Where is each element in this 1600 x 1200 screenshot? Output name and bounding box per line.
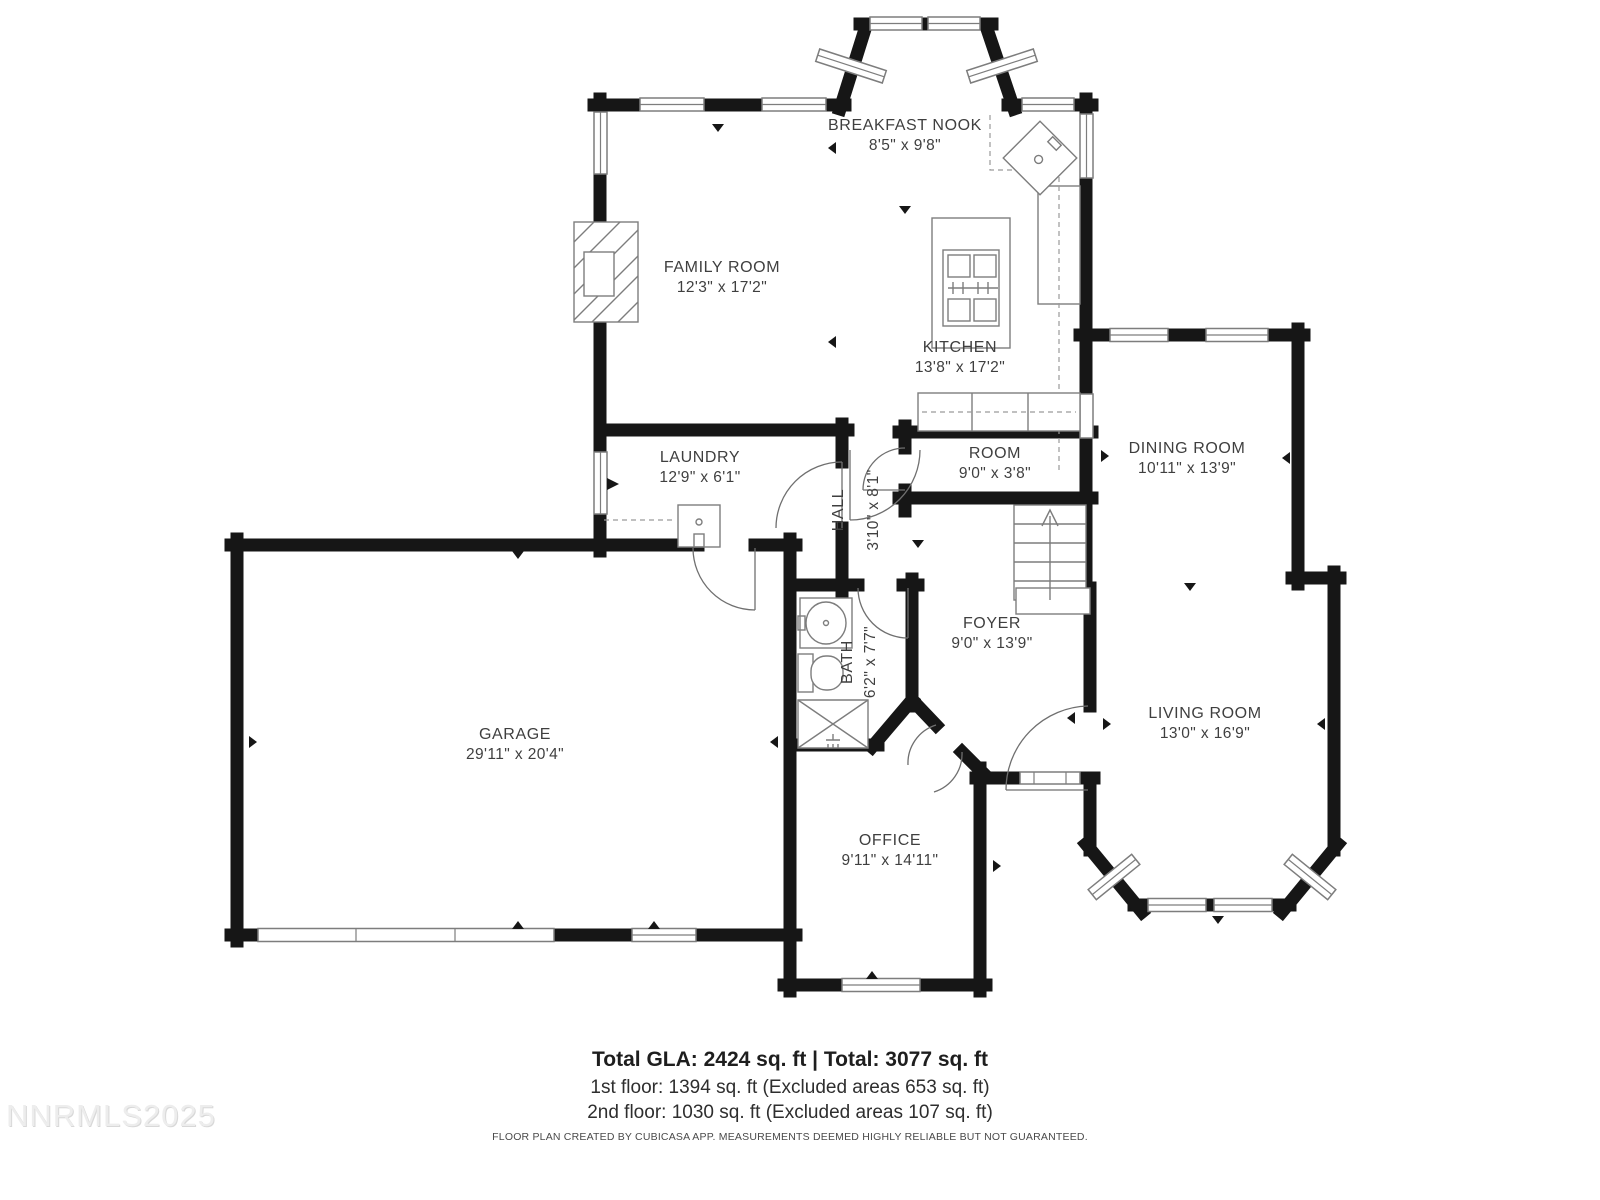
room-label-kitchen: KITCHEN 13'8" x 17'2" xyxy=(915,339,1005,376)
door-garage xyxy=(693,548,755,610)
window xyxy=(1206,329,1268,342)
svg-text:8'5" x 9'8": 8'5" x 9'8" xyxy=(869,137,941,154)
window xyxy=(640,98,704,111)
stairs xyxy=(1014,505,1090,614)
watermark-text: NNRMLS2025 xyxy=(6,1098,216,1134)
corner-sink-icon xyxy=(1003,121,1077,195)
bath-fixtures xyxy=(798,598,868,748)
svg-text:9'0" x 3'8": 9'0" x 3'8" xyxy=(959,465,1031,482)
garage-door xyxy=(258,929,554,942)
svg-text:13'8" x 17'2": 13'8" x 17'2" xyxy=(915,359,1005,376)
shower-icon xyxy=(798,700,868,748)
window xyxy=(762,98,826,111)
svg-text:OFFICE: OFFICE xyxy=(859,832,921,849)
room-label-family-room: FAMILY ROOM 12'3" x 17'2" xyxy=(664,259,780,296)
windows xyxy=(258,17,1336,992)
svg-text:12'3" x 17'2": 12'3" x 17'2" xyxy=(677,279,767,296)
window xyxy=(1110,329,1168,342)
svg-text:6'2" x 7'7": 6'2" x 7'7" xyxy=(862,626,879,698)
svg-text:10'11" x 13'9": 10'11" x 13'9" xyxy=(1138,460,1236,477)
room-label-office: OFFICE 9'11" x 14'11" xyxy=(842,832,939,869)
window xyxy=(594,112,607,174)
svg-text:LIVING ROOM: LIVING ROOM xyxy=(1148,705,1261,722)
door-office-a xyxy=(908,725,936,765)
disclaimer-text: FLOOR PLAN CREATED BY CUBICASA APP. MEAS… xyxy=(0,1131,1580,1143)
svg-text:FOYER: FOYER xyxy=(963,615,1021,632)
window xyxy=(594,452,607,514)
total-gla-line: Total GLA: 2424 sq. ft | Total: 3077 sq.… xyxy=(0,1048,1580,1072)
stove-icon xyxy=(943,250,999,326)
fireplace xyxy=(574,222,638,322)
window xyxy=(842,979,920,992)
window xyxy=(928,17,980,30)
window xyxy=(1214,899,1272,912)
door-office-b xyxy=(934,752,962,792)
second-floor-line: 2nd floor: 1030 sq. ft (Excluded areas 1… xyxy=(0,1102,1580,1124)
room-label-dining-room: DINING ROOM 10'11" x 13'9" xyxy=(1129,440,1246,477)
room-label-living-room: LIVING ROOM 13'0" x 16'9" xyxy=(1148,705,1261,742)
window xyxy=(1080,114,1093,178)
svg-text:HALL: HALL xyxy=(830,489,847,531)
svg-text:DINING ROOM: DINING ROOM xyxy=(1129,440,1246,457)
room-label-garage: GARAGE 29'11" x 20'4" xyxy=(466,726,564,763)
window xyxy=(870,17,922,30)
svg-text:BATH: BATH xyxy=(839,640,856,684)
room-label-breakfast-nook: BREAKFAST NOOK 8'5" x 9'8" xyxy=(828,117,982,154)
svg-text:GARAGE: GARAGE xyxy=(479,726,551,743)
area-summary: Total GLA: 2424 sq. ft | Total: 3077 sq.… xyxy=(0,1048,1580,1127)
svg-text:LAUNDRY: LAUNDRY xyxy=(660,449,740,466)
walls xyxy=(231,24,1340,991)
svg-text:BREAKFAST NOOK: BREAKFAST NOOK xyxy=(828,117,982,134)
svg-text:FAMILY ROOM: FAMILY ROOM xyxy=(664,259,780,276)
svg-text:9'0" x 13'9": 9'0" x 13'9" xyxy=(951,635,1032,652)
svg-text:29'11" x 20'4": 29'11" x 20'4" xyxy=(466,746,564,763)
toilet-icon xyxy=(798,654,843,692)
svg-text:13'0" x 16'9": 13'0" x 16'9" xyxy=(1160,725,1250,742)
svg-text:3'10" x 8'1": 3'10" x 8'1" xyxy=(865,469,882,550)
floor-plan-page: BREAKFAST NOOK 8'5" x 9'8" FAMILY ROOM 1… xyxy=(0,0,1600,1200)
room-label-room: ROOM 9'0" x 3'8" xyxy=(959,445,1031,482)
first-floor-line: 1st floor: 1394 sq. ft (Excluded areas 6… xyxy=(0,1077,1580,1099)
floor-plan-canvas: BREAKFAST NOOK 8'5" x 9'8" FAMILY ROOM 1… xyxy=(0,0,1600,1200)
cased-opening xyxy=(1080,394,1093,438)
room-label-laundry: LAUNDRY 12'9" x 6'1" xyxy=(659,449,740,486)
svg-text:9'11" x 14'11": 9'11" x 14'11" xyxy=(842,852,939,869)
svg-text:ROOM: ROOM xyxy=(969,445,1021,462)
svg-text:KITCHEN: KITCHEN xyxy=(923,339,997,356)
window xyxy=(1148,899,1206,912)
window xyxy=(1022,98,1074,111)
svg-text:12'9" x 6'1": 12'9" x 6'1" xyxy=(659,469,740,486)
garage-side-door xyxy=(632,929,696,942)
room-label-foyer: FOYER 9'0" x 13'9" xyxy=(951,615,1032,652)
entry-threshold xyxy=(1020,772,1080,784)
kitchen-island xyxy=(932,218,1010,348)
